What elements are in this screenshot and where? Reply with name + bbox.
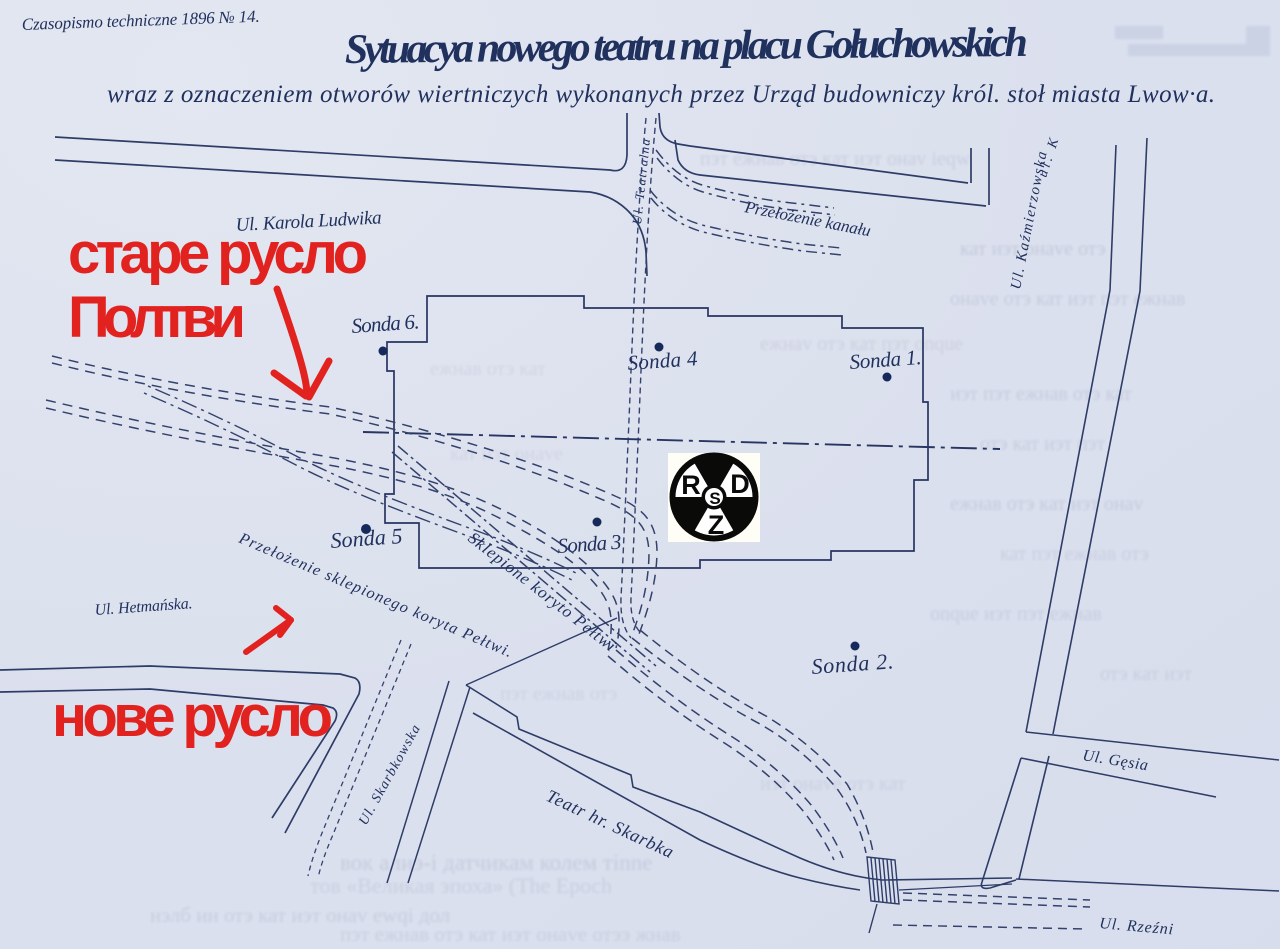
svg-text:Sonda 4: Sonda 4	[627, 346, 699, 375]
svg-text:пэт ежнав отэ кат иэт онave от: пэт ежнав отэ кат иэт онave отээ жнав	[340, 922, 681, 946]
svg-text:нове русло: нове русло	[52, 684, 333, 749]
svg-text:тов «Великая эпоха» (The Epoch: тов «Великая эпоха» (The Epoch	[310, 873, 612, 898]
svg-text:Sonda 1.: Sonda 1.	[849, 345, 922, 374]
svg-text:S: S	[709, 489, 720, 508]
svg-text:отэ кат иэт пэт: отэ кат иэт пэт	[980, 433, 1105, 455]
svg-text:онave отэ кат иэт пэт ежнав: онave отэ кат иэт пэт ежнав	[950, 288, 1185, 310]
svg-text:wraz z oznaczeniem otworów wie: wraz z oznaczeniem otworów wiertniczych …	[107, 81, 1215, 108]
svg-text:ежнав отэ кат иэт онav: ежнав отэ кат иэт онav	[950, 493, 1143, 515]
svg-text:иэт пэт ежнав отэ кат: иэт пэт ежнав отэ кат	[950, 383, 1132, 405]
svg-text:отэ кат иэт: отэ кат иэт	[1100, 663, 1192, 685]
svg-text:D: D	[730, 469, 750, 499]
svg-text:вок алиэ-i датчикам колем тinn: вок алиэ-i датчикам колем тinnе	[340, 850, 652, 875]
svg-text:Полтви: Полтви	[68, 285, 246, 350]
svg-text:Sonda 6.: Sonda 6.	[351, 309, 421, 338]
svg-text:пэт ежнав отэ кат иэт онav ieq: пэт ежнав отэ кат иэт онav ieqw	[700, 148, 971, 170]
svg-text:старе русло: старе русло	[68, 221, 368, 286]
svg-text:ежнав отэ кат: ежнав отэ кат	[430, 358, 546, 380]
svg-text:Sytuacya nowego teatru na plac: Sytuacya nowego teatru na placu Gołuchow…	[345, 20, 1028, 73]
svg-text:кат иэт онave: кат иэт онave	[450, 443, 563, 465]
svg-text:Z: Z	[708, 510, 725, 540]
svg-text:кат пэт ежнав отэ: кат пэт ежнав отэ	[1000, 543, 1149, 565]
svg-text:пэт ежнав отэ: пэт ежнав отэ	[500, 683, 617, 705]
svg-text:Sonda 3: Sonda 3	[557, 530, 623, 558]
svg-text:R: R	[681, 470, 701, 500]
